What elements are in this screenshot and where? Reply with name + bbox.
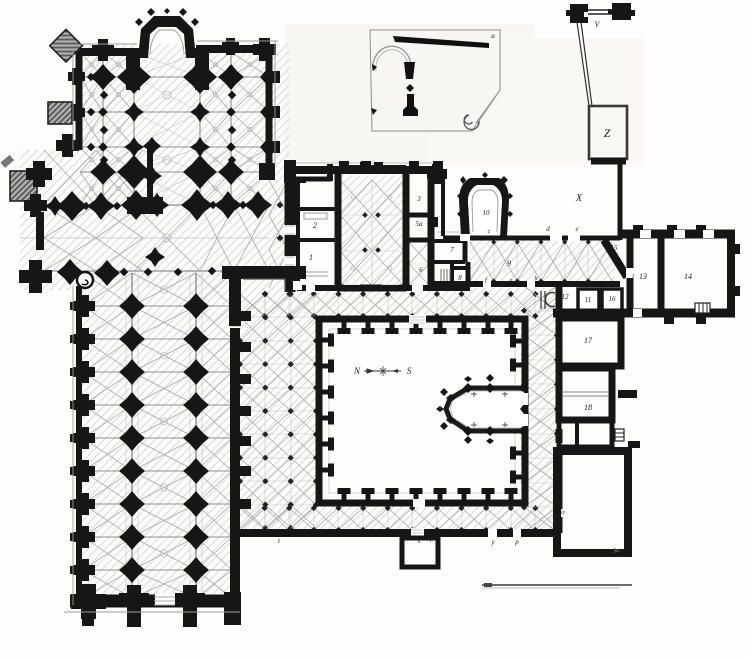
svg-text:8: 8 [458,274,462,282]
svg-text:17: 17 [584,336,593,345]
svg-text:n: n [558,443,561,449]
svg-text:S: S [407,366,412,376]
svg-text:m: m [557,336,562,344]
svg-text:r: r [430,536,433,544]
svg-text:6: 6 [419,266,423,274]
svg-text:12: 12 [562,293,570,301]
svg-text:n: n [558,377,561,383]
svg-text:o: o [561,508,565,516]
svg-text:Z: Z [604,126,611,140]
svg-text:n: n [557,422,560,428]
svg-text:3: 3 [416,195,421,203]
svg-text:s: s [418,537,421,545]
svg-text:a: a [491,32,495,40]
svg-text:c: c [488,229,491,235]
svg-text:16: 16 [609,295,617,303]
svg-text:N: N [353,366,361,376]
svg-text:l: l [632,273,634,281]
svg-text:13: 13 [639,272,647,281]
svg-text:5a: 5a [416,220,424,228]
svg-text:11: 11 [585,296,591,304]
svg-text:g: g [510,278,513,284]
svg-text:p: p [514,538,519,546]
svg-text:h: h [535,276,538,282]
svg-text:e: e [575,225,578,233]
svg-text:9: 9 [507,259,511,268]
svg-text:2: 2 [313,221,317,230]
svg-text:1: 1 [309,253,313,262]
svg-text:d: d [546,225,550,233]
svg-text:18: 18 [584,403,592,412]
svg-text:X: X [575,193,583,204]
svg-text:7: 7 [450,246,454,254]
svg-text:14: 14 [684,272,692,281]
svg-text:15: 15 [611,244,619,252]
svg-text:10: 10 [483,209,491,217]
svg-text:n: n [558,400,561,406]
